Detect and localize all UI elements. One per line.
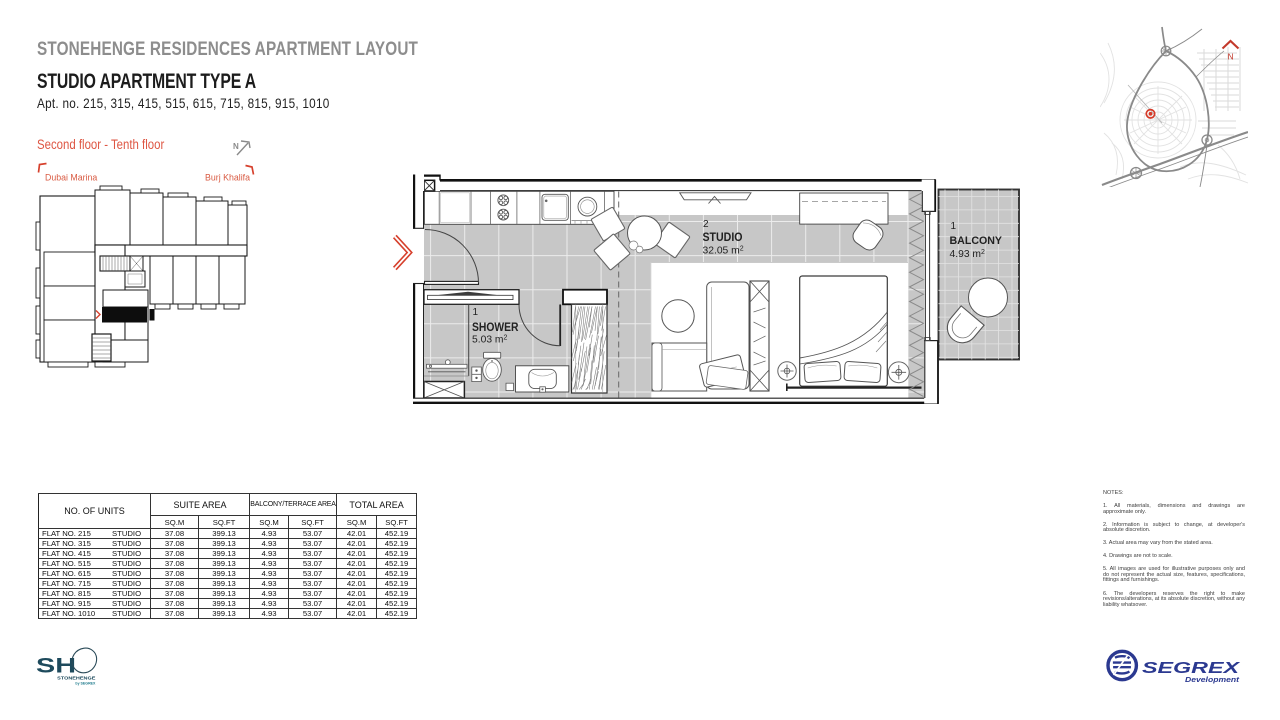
svg-text:1: 1	[473, 307, 479, 318]
svg-text:5.03 m2: 5.03 m2	[472, 335, 507, 346]
svg-text:N: N	[1228, 52, 1234, 62]
svg-text:STONEHENGE: STONEHENGE	[57, 675, 96, 681]
svg-text:2: 2	[703, 219, 709, 230]
svg-text:1: 1	[951, 221, 957, 232]
svg-text:Dubai Marina: Dubai Marina	[45, 173, 97, 183]
svg-text:Development: Development	[1185, 675, 1240, 684]
svg-text:32.05 m2: 32.05 m2	[703, 246, 744, 257]
svg-text:by SEGREX: by SEGREX	[75, 682, 96, 686]
svg-text:Burj Khalifa: Burj Khalifa	[205, 173, 250, 183]
svg-text:N: N	[233, 142, 239, 151]
svg-text:STUDIO: STUDIO	[703, 231, 743, 244]
svg-text:SH: SH	[36, 654, 76, 678]
svg-text:BALCONY: BALCONY	[950, 235, 1003, 247]
svg-text:SHOWER: SHOWER	[472, 321, 519, 334]
svg-text:4.93 m2: 4.93 m2	[950, 249, 985, 260]
